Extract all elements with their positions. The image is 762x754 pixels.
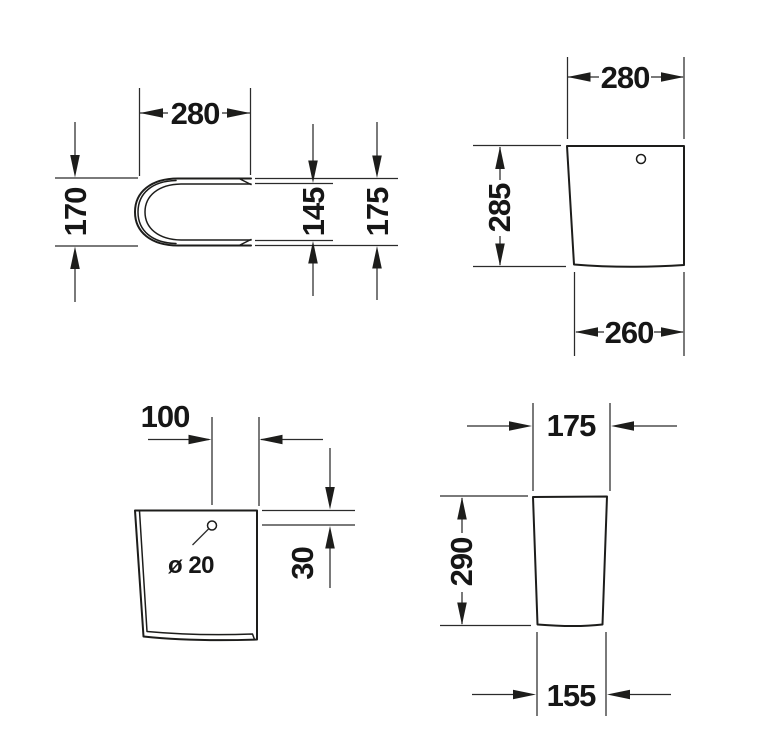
arrowhead-up bbox=[495, 147, 505, 170]
u-shape-inner-contour bbox=[145, 184, 251, 240]
dimension-front-height: 290 bbox=[444, 497, 479, 625]
arrowhead-left bbox=[140, 108, 163, 118]
arrowhead-right bbox=[661, 72, 684, 82]
arrowhead-up bbox=[372, 246, 382, 269]
dimension-drawing: 280 170 145 175 bbox=[0, 0, 762, 754]
dim-label-top-width: 280 bbox=[171, 96, 220, 131]
arrowhead-right bbox=[189, 435, 212, 445]
dimension-hole-top-distance: 30 bbox=[285, 448, 335, 588]
hole-leader-line bbox=[193, 529, 209, 545]
side-view-body bbox=[567, 146, 684, 267]
dimension-top-width: 280 bbox=[140, 96, 250, 131]
dim-label-front-top-width: 175 bbox=[547, 408, 596, 443]
arrowhead-left bbox=[260, 435, 283, 445]
dim-label-hole-diameter: ø 20 bbox=[168, 552, 214, 579]
dim-label-side-bottom-width: 260 bbox=[605, 315, 654, 350]
arrowhead-left bbox=[607, 690, 630, 700]
dim-label-front-height: 290 bbox=[444, 538, 479, 587]
dimension-side-height: 285 bbox=[482, 147, 517, 267]
technical-drawing-canvas: 280 170 145 175 bbox=[0, 0, 762, 754]
arrowhead-left bbox=[575, 327, 598, 337]
hole bbox=[208, 521, 217, 530]
back-view: ø 20 100 30 bbox=[135, 399, 355, 640]
arrowhead-up bbox=[70, 247, 80, 270]
dim-label-side-top-width: 280 bbox=[601, 60, 650, 95]
arrowhead-right bbox=[227, 108, 250, 118]
dimension-left-height: 170 bbox=[58, 122, 93, 302]
arrowhead-up bbox=[325, 526, 335, 549]
dimension-front-bottom-width: 155 bbox=[472, 678, 671, 713]
u-shape-outer-contour bbox=[135, 179, 251, 246]
front-view: 175 290 155 bbox=[440, 403, 677, 716]
arrowhead-up bbox=[457, 497, 467, 520]
dimension-front-top-width: 175 bbox=[467, 408, 677, 443]
dim-label-outer-height: 175 bbox=[360, 187, 395, 236]
dimension-hole-offset: 100 bbox=[141, 399, 323, 444]
side-view: 280 285 260 bbox=[473, 57, 684, 356]
dim-label-side-height: 285 bbox=[482, 183, 517, 232]
arrowhead-right bbox=[661, 327, 684, 337]
dim-label-front-bottom-width: 155 bbox=[547, 678, 596, 713]
arrowhead-down bbox=[372, 156, 382, 179]
dimension-outer-height: 175 bbox=[360, 122, 395, 300]
top-view: 280 170 145 175 bbox=[55, 88, 398, 302]
front-view-body bbox=[533, 497, 607, 627]
arrowhead-left bbox=[568, 72, 591, 82]
arrowhead-left bbox=[611, 421, 634, 431]
arrowhead-down bbox=[495, 244, 505, 267]
dimension-inner-height: 145 bbox=[296, 124, 331, 296]
arrowhead-up bbox=[308, 241, 318, 264]
dimension-side-top-width: 280 bbox=[568, 60, 685, 95]
arrowhead-down bbox=[457, 603, 467, 626]
mounting-hole bbox=[637, 155, 646, 164]
dim-label-inner-height: 145 bbox=[296, 187, 331, 236]
arrowhead-down bbox=[308, 161, 318, 184]
arrowhead-right bbox=[509, 421, 532, 431]
arrowhead-down bbox=[325, 487, 335, 510]
dim-label-hole-top-distance: 30 bbox=[285, 547, 320, 579]
dimension-side-bottom-width: 260 bbox=[575, 315, 684, 350]
dim-label-left-height: 170 bbox=[58, 188, 93, 237]
arrowhead-right bbox=[513, 690, 536, 700]
arrowhead-down bbox=[70, 155, 80, 178]
dim-label-hole-offset: 100 bbox=[141, 399, 190, 434]
